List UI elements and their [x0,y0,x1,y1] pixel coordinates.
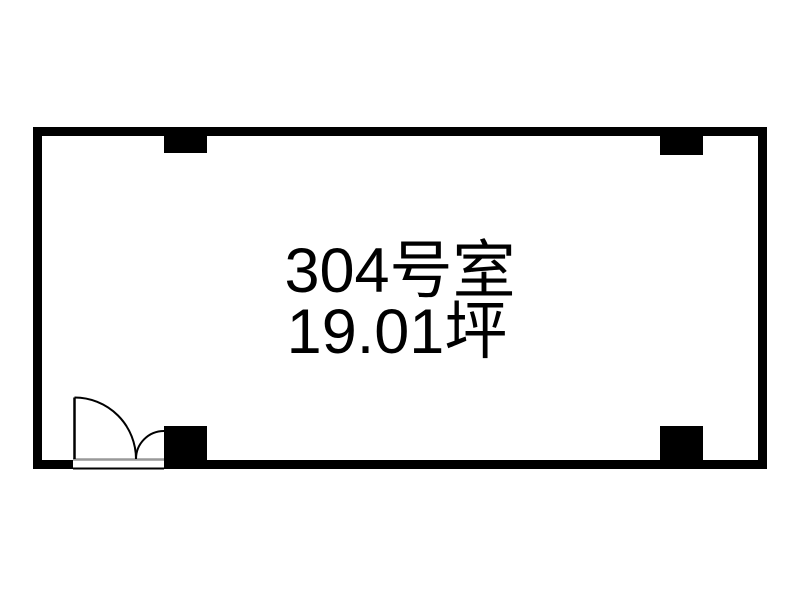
pillar-bottom-left [164,426,207,469]
room-area-label: 19.01坪 [287,297,508,367]
door-swing-icon [73,397,164,470]
pillar-bottom-right [660,426,703,469]
door-arc-large [75,397,137,459]
floor-plan-page: 304号室 19.01坪 [0,0,800,600]
door-arc-small [136,431,164,459]
pillar-top-left [164,127,207,153]
floor-plan-drawing: 304号室 19.01坪 [0,0,800,600]
room-number-label: 304号室 [284,236,515,306]
pillar-top-right [660,127,703,155]
